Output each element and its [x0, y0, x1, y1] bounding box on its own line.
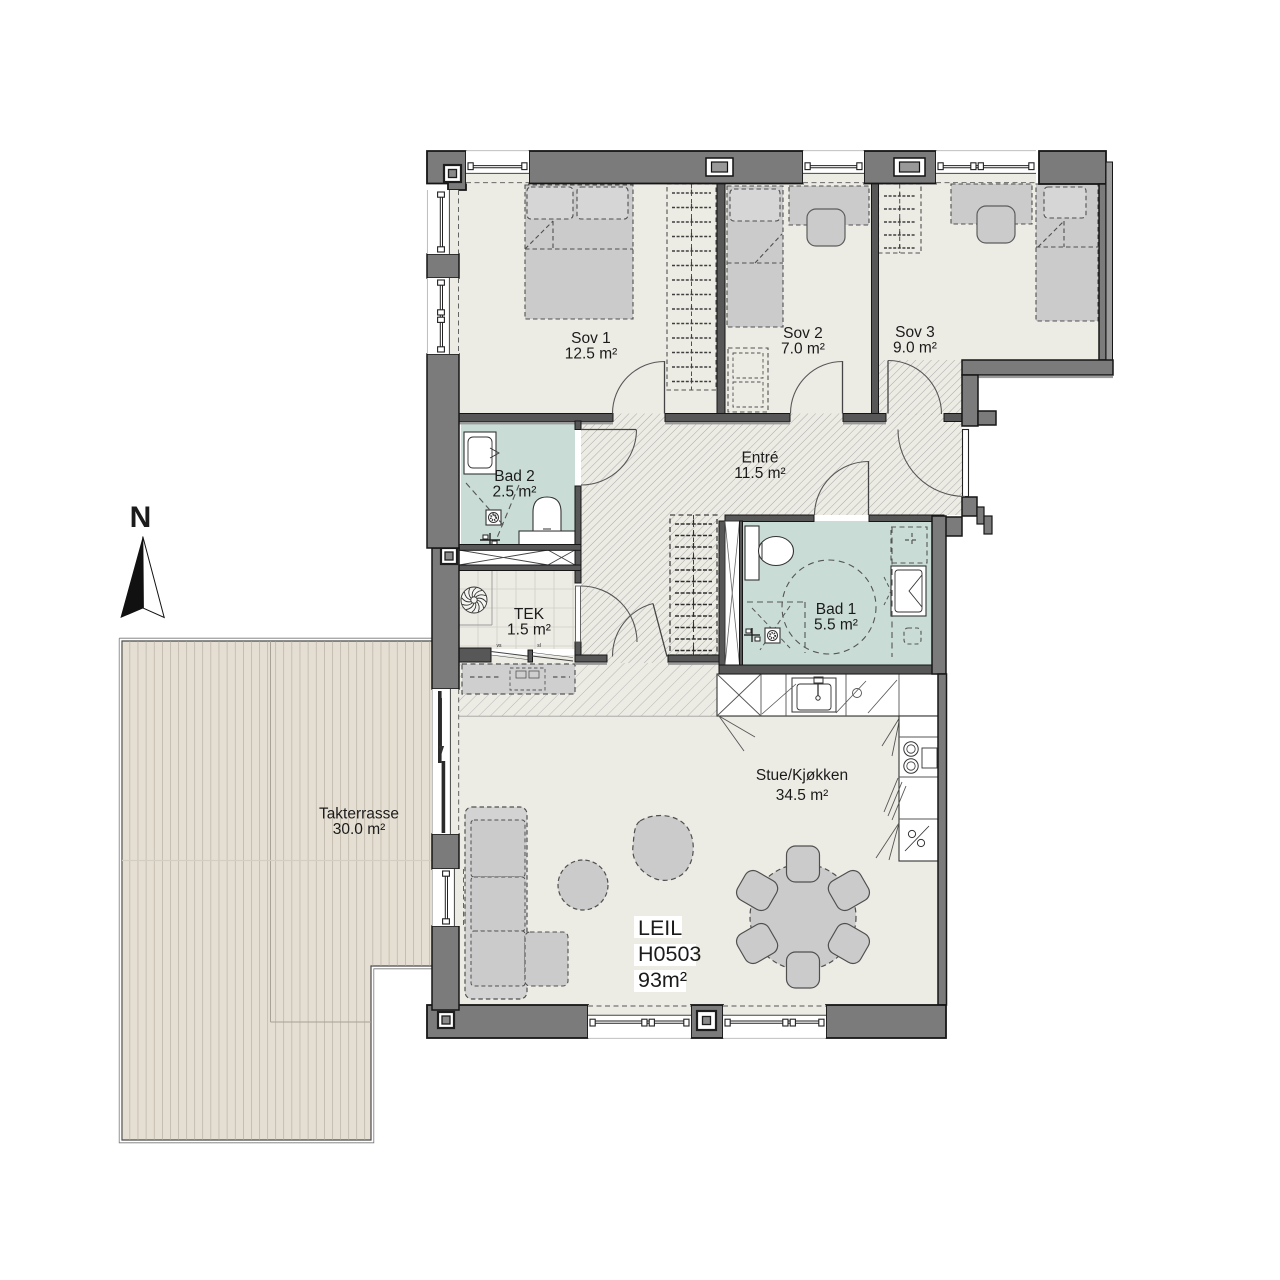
svg-text:sl: sl [537, 643, 541, 649]
svg-text:9.0 m²: 9.0 m² [893, 339, 937, 356]
svg-text:2.5 m²: 2.5 m² [493, 483, 537, 500]
svg-text:12.5 m²: 12.5 m² [565, 345, 618, 362]
svg-text:93m²: 93m² [638, 968, 687, 992]
svg-text:H0503: H0503 [638, 942, 701, 966]
svg-text:LEIL: LEIL [638, 916, 682, 940]
svg-text:7.0 m²: 7.0 m² [781, 340, 825, 357]
svg-text:1.5 m²: 1.5 m² [507, 621, 551, 638]
svg-text:N: N [130, 501, 152, 534]
svg-text:11.5 m²: 11.5 m² [734, 465, 785, 482]
svg-text:vs: vs [497, 643, 503, 649]
svg-text:30.0 m²: 30.0 m² [333, 821, 386, 838]
svg-text:5.5 m²: 5.5 m² [814, 616, 858, 633]
svg-text:34.5 m²: 34.5 m² [776, 787, 829, 804]
svg-text:Stue/Kjøkken: Stue/Kjøkken [756, 767, 848, 784]
